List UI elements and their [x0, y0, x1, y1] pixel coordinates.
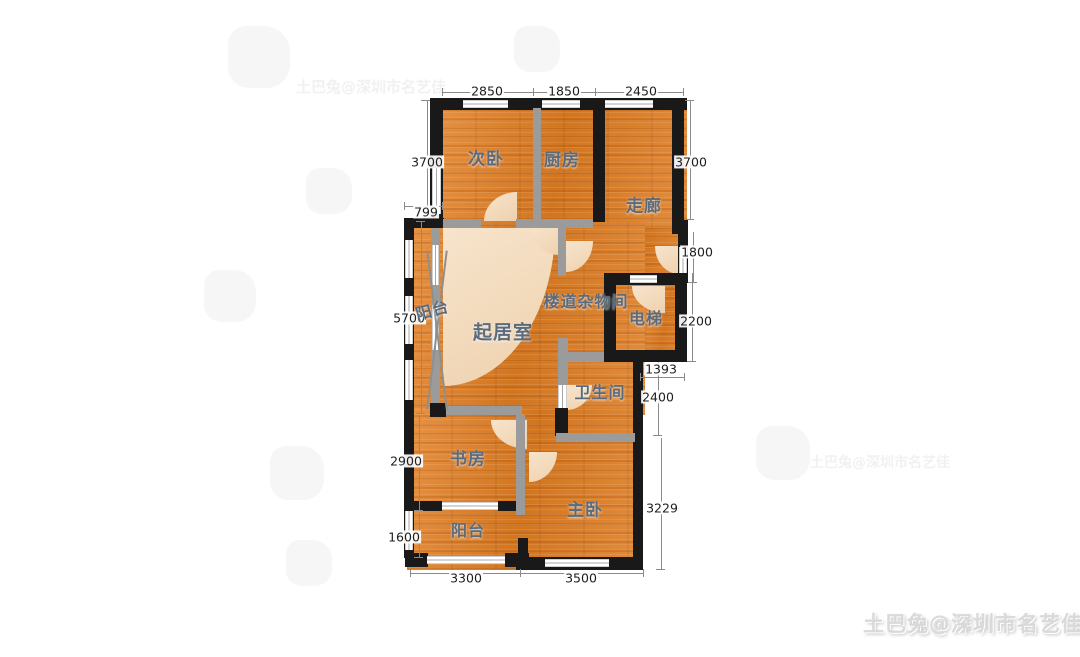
dim-tick — [685, 100, 694, 101]
dim-label-right-2400: 2400 — [641, 390, 675, 403]
floor-plan-page: 土巴兔@深圳市名艺佳 土巴兔@深圳市名艺佳 — [0, 0, 1080, 657]
watermark-faint-text: 土巴兔@深圳市名艺佳 — [810, 452, 950, 472]
dim-label-bottom-3300: 3300 — [449, 571, 483, 584]
dim-tick — [643, 569, 644, 577]
room-label-bathroom: 卫生间 — [574, 379, 625, 403]
watermark-logo — [270, 446, 324, 500]
dim-tick — [653, 435, 662, 436]
dim-tick — [416, 413, 425, 414]
dim-tick — [684, 373, 685, 381]
dim-label-top-2450: 2450 — [624, 84, 658, 97]
room-label-elevator: 电梯 — [629, 305, 663, 329]
watermark-logo — [514, 26, 560, 72]
dim-tick — [687, 361, 696, 362]
dim-label-left-1600: 1600 — [387, 530, 421, 543]
watermark-logo — [204, 270, 256, 322]
window-top-kitchen — [542, 100, 580, 108]
wall-bottom-left-corner — [405, 553, 428, 567]
dim-tick — [421, 100, 430, 101]
watermark-logo — [756, 426, 810, 480]
watermark-credit: 土巴兔@深圳市名艺佳 — [863, 608, 1080, 638]
watermark-logo — [286, 540, 332, 586]
dim-label-left-3700: 3700 — [410, 155, 444, 168]
dim-tick — [656, 569, 665, 570]
window-top-bedroom — [463, 100, 508, 108]
wall-corridor-study — [516, 415, 525, 515]
dim-line-bottom — [410, 573, 643, 574]
wall-elevator-left — [604, 273, 616, 362]
wall-balcony-study-left — [405, 501, 442, 511]
window-balcony-left-3 — [405, 360, 413, 400]
dim-label-right-1800: 1800 — [680, 245, 714, 258]
dim-tick — [533, 88, 534, 96]
dim-tick — [595, 88, 596, 96]
wall-kitchen-corridor — [593, 100, 605, 222]
bathroom-door-opening — [558, 385, 567, 408]
room-label-secondary-bedroom: 次卧 — [468, 145, 504, 170]
watermark-logo — [228, 26, 290, 88]
wall-under-bedroom-right — [516, 219, 593, 228]
dim-tick — [683, 88, 684, 96]
room-label-kitchen: 厨房 — [544, 146, 580, 171]
wall-living-storage-upper — [558, 228, 566, 276]
dim-label-1393: 1393 — [644, 362, 678, 375]
window-bottom-balcony — [427, 556, 506, 564]
dim-tick — [520, 569, 521, 577]
window-master-bottom — [545, 559, 609, 567]
dim-label-right-3700: 3700 — [674, 155, 708, 168]
dim-label-top-2850: 2850 — [470, 84, 504, 97]
window-balcony-left-1 — [405, 240, 413, 278]
window-top-corridor — [603, 100, 653, 108]
dim-tick — [442, 202, 443, 210]
room-label-master-bedroom: 主卧 — [567, 496, 603, 521]
room-label-bottom-balcony: 阳台 — [451, 517, 485, 541]
window-balcony-inner-1 — [432, 245, 439, 285]
dim-tick — [414, 510, 423, 511]
watermark-logo — [306, 168, 352, 214]
watermark-faint-text: 土巴兔@深圳市名艺佳 — [296, 76, 446, 97]
dim-tick — [685, 219, 694, 220]
dim-tick — [410, 569, 411, 577]
window-balcony-study — [442, 502, 498, 510]
wall-elevator-bottom — [604, 350, 687, 362]
wall-living-study-corner — [430, 403, 446, 417]
dim-label-right-2200: 2200 — [679, 314, 713, 327]
dim-label-top-1850: 1850 — [547, 84, 581, 97]
wall-under-bedroom-left — [443, 219, 481, 228]
dim-tick — [416, 221, 425, 222]
dim-tick — [640, 373, 641, 381]
wall-bathroom-top — [558, 352, 604, 362]
room-label-study: 书房 — [450, 445, 486, 470]
wall-bedroom-kitchen — [533, 108, 541, 220]
wall-bath-corridor-chunk — [555, 408, 568, 436]
dim-tick — [442, 88, 443, 96]
room-label-corridor: 走廊 — [626, 192, 662, 217]
room-label-living-room: 起居室 — [473, 318, 533, 345]
dim-label-bottom-3500: 3500 — [564, 571, 598, 584]
dim-label-left-799: 799 — [413, 205, 439, 218]
dim-tick — [404, 202, 405, 210]
dim-label-left-2900: 2900 — [389, 454, 423, 467]
wall-master-left-lower — [518, 538, 528, 568]
dim-tick — [414, 557, 423, 558]
room-label-stair-storage: 楼道杂物间 — [543, 288, 628, 312]
wall-living-study — [446, 406, 522, 415]
wall-master-top — [556, 433, 635, 442]
dim-label-right-3229: 3229 — [645, 501, 679, 514]
dim-line-1393 — [640, 377, 685, 378]
elevator-door-opening — [630, 275, 657, 283]
